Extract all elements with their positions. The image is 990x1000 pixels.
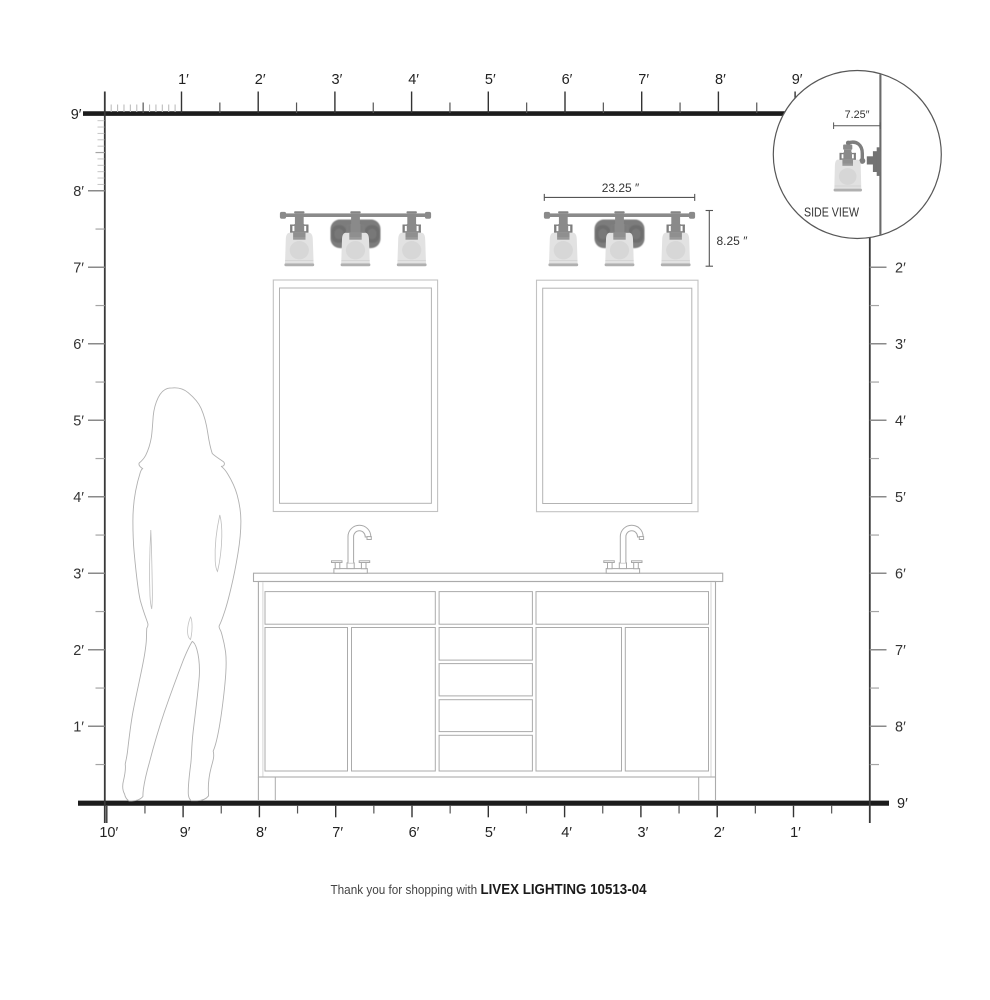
- svg-text:7.25″: 7.25″: [845, 109, 870, 121]
- svg-text:7′: 7′: [332, 825, 343, 841]
- svg-text:8′: 8′: [715, 72, 726, 88]
- svg-text:7′: 7′: [638, 72, 649, 88]
- svg-text:6′: 6′: [895, 566, 906, 582]
- svg-text:7′: 7′: [73, 260, 84, 276]
- svg-text:2′: 2′: [714, 825, 725, 841]
- svg-text:Thank you for shopping with LI: Thank you for shopping with LIVEX LIGHTI…: [331, 881, 648, 898]
- svg-text:23.25 ″: 23.25 ″: [602, 181, 640, 195]
- svg-text:2′: 2′: [255, 72, 266, 88]
- svg-text:4′: 4′: [408, 72, 419, 88]
- svg-text:8′: 8′: [895, 719, 906, 735]
- svg-text:6′: 6′: [73, 337, 84, 353]
- svg-text:3′: 3′: [895, 337, 906, 353]
- svg-text:6′: 6′: [409, 825, 420, 841]
- svg-text:5′: 5′: [895, 490, 906, 506]
- svg-text:9′: 9′: [897, 796, 908, 812]
- svg-text:4′: 4′: [895, 413, 906, 429]
- svg-text:3′: 3′: [332, 72, 343, 88]
- svg-text:3′: 3′: [638, 825, 649, 841]
- svg-text:1′: 1′: [73, 719, 84, 735]
- svg-text:2′: 2′: [895, 260, 906, 276]
- svg-text:9′: 9′: [180, 825, 191, 841]
- svg-text:5′: 5′: [485, 72, 496, 88]
- svg-text:2′: 2′: [73, 643, 84, 659]
- svg-text:8′: 8′: [256, 825, 267, 841]
- svg-text:SIDE VIEW: SIDE VIEW: [804, 205, 860, 220]
- svg-text:9′: 9′: [71, 107, 82, 123]
- svg-text:8.25 ″: 8.25 ″: [717, 234, 749, 248]
- svg-text:7′: 7′: [895, 643, 906, 659]
- svg-text:9′: 9′: [792, 72, 803, 88]
- svg-text:8′: 8′: [73, 184, 84, 200]
- svg-text:4′: 4′: [561, 825, 572, 841]
- svg-text:10′: 10′: [99, 825, 118, 841]
- svg-text:5′: 5′: [73, 413, 84, 429]
- svg-text:6′: 6′: [562, 72, 573, 88]
- svg-text:5′: 5′: [485, 825, 496, 841]
- svg-text:4′: 4′: [73, 490, 84, 506]
- svg-text:1′: 1′: [790, 825, 801, 841]
- svg-text:3′: 3′: [73, 566, 84, 582]
- svg-text:1′: 1′: [178, 72, 189, 88]
